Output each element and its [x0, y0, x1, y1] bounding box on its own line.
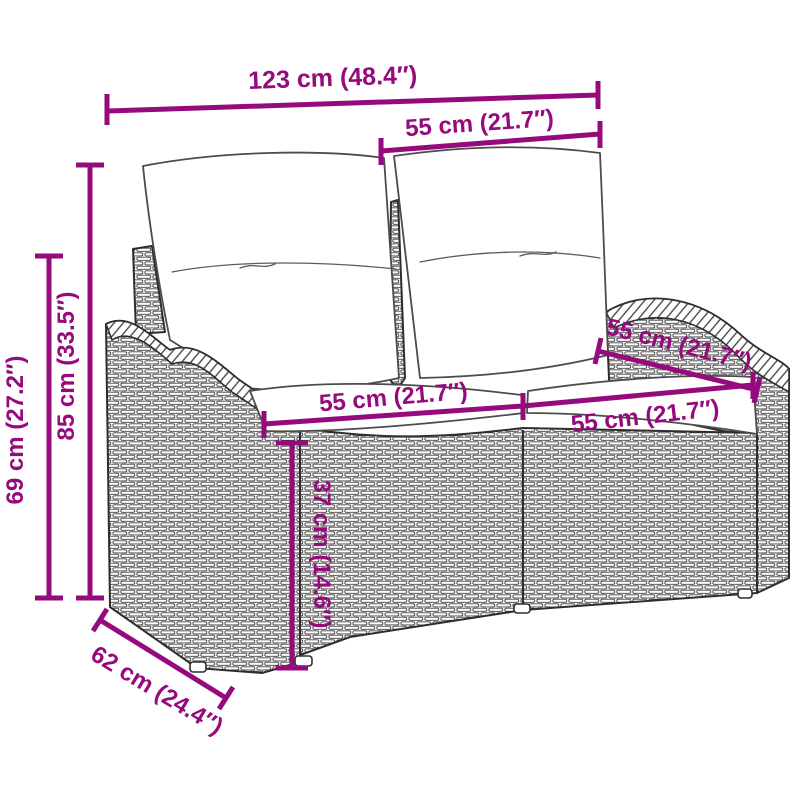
dimension-diagram: 123 cm (48.4″) 55 cm (21.7″) 85 cm (33.5…: [0, 0, 800, 800]
bench-foot: [514, 604, 530, 613]
dim-tick: [93, 609, 107, 631]
dim-label-seat-height: 37 cm (14.6″): [308, 480, 335, 629]
bench-foot: [295, 656, 312, 666]
dim-label-total-height: 85 cm (33.5″): [53, 292, 80, 441]
bench-foot: [738, 589, 752, 598]
back-cushion-right: [394, 147, 608, 378]
seat-base-front: [292, 426, 757, 658]
dim-label-arm-height: 69 cm (27.2″): [2, 356, 29, 505]
dim-label-back-section-width: 55 cm (21.7″): [404, 105, 554, 142]
dim-tick: [219, 687, 233, 709]
dim-label-overall-width: 123 cm (48.4″): [248, 61, 418, 95]
diagram-canvas: 123 cm (48.4″) 55 cm (21.7″) 85 cm (33.5…: [0, 0, 800, 800]
dim-total-height: 85 cm (33.5″): [53, 165, 104, 598]
bench-foot: [190, 662, 206, 672]
